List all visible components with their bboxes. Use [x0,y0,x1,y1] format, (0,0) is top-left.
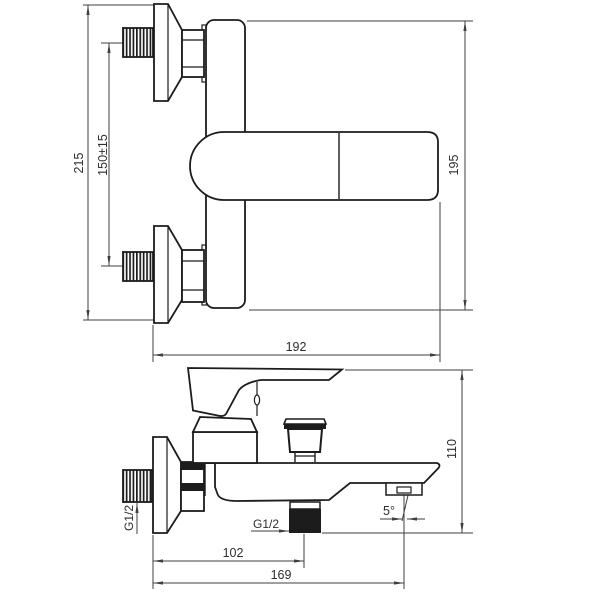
diverter-cap [284,419,326,424]
lever-handle-side [188,368,342,416]
dim-label-overall-width: 192 [286,340,307,354]
neck-side [193,417,257,432]
technical-drawing-page: 215 150±15 195 192 110 102 169 G1/2 G1/2… [0,0,600,600]
dim-label-wall-to-outlet: 102 [223,546,244,560]
lever-handle-front [190,132,438,200]
diverter-knob [284,419,326,462]
dim-label-side-height: 110 [445,439,459,459]
label-spout-angle: 5° [383,504,395,518]
outlet-collar [290,502,320,509]
label-outlet-thread: G1/2 [253,517,279,531]
front-view [83,4,473,362]
diverter-body [288,429,322,452]
top-eccentric-union [123,4,207,101]
inlet-thread-side [123,470,152,502]
outlet-thread [289,509,321,533]
dim-label-body-height: 195 [447,155,461,176]
side-view [123,368,473,589]
aerator-insert [397,487,411,493]
inlet-thread-top [123,28,153,57]
label-inlet-thread: G1/2 [122,505,136,531]
inlet-thread-bottom [123,252,153,281]
spout-side [205,463,439,501]
tub-outlet [289,502,321,533]
faucet-drawing-svg: 215 150±15 195 192 110 102 169 G1/2 G1/2… [0,0,600,600]
dimension-labels: 215 150±15 195 192 110 102 169 G1/2 G1/2… [72,134,461,582]
dim-label-overall-height: 215 [72,153,86,174]
dim-label-wall-to-aerator: 169 [271,568,292,582]
handle-pivot-cap [254,395,259,405]
bottom-eccentric-union [123,226,207,323]
cartridge-body-side [193,432,257,463]
dim-label-inlet-spacing: 150±15 [96,134,110,176]
union-nut-bottom [182,250,204,302]
union-nut-top [182,30,204,77]
